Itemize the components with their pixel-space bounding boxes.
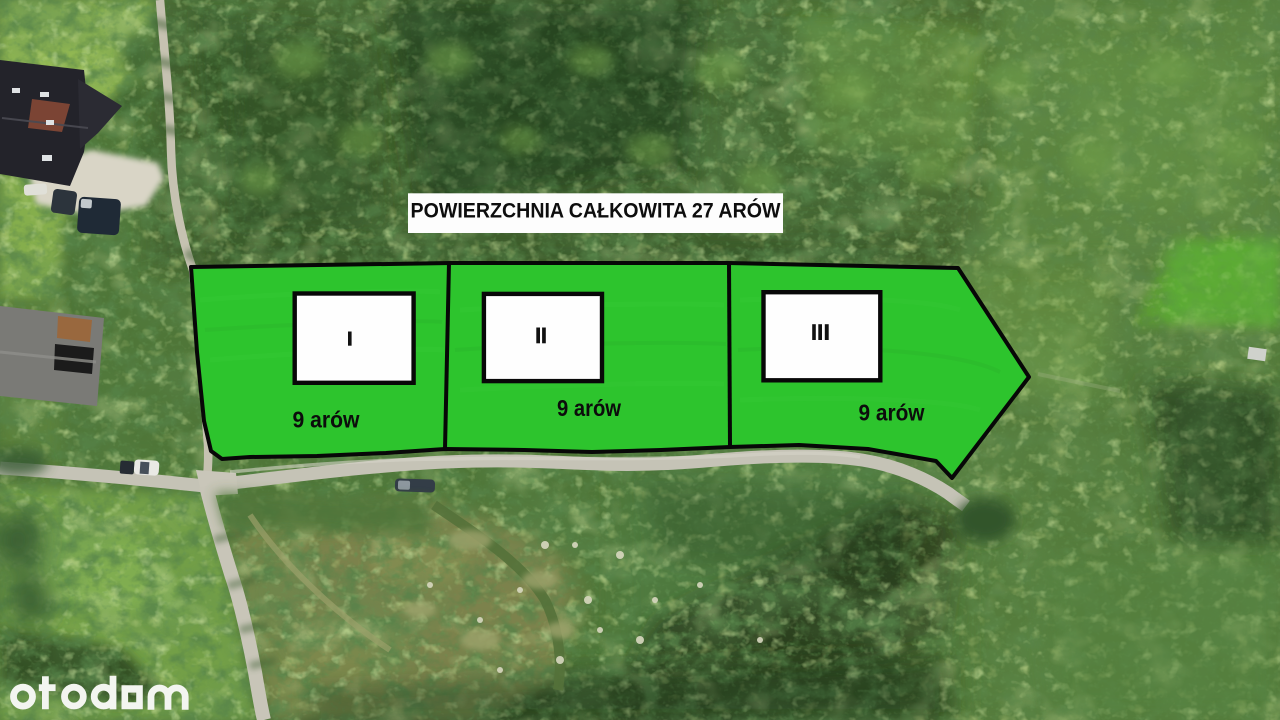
svg-text:9 arów: 9 arów <box>859 400 925 426</box>
svg-text:POWIERZCHNIA CAŁKOWITA 27 ARÓW: POWIERZCHNIA CAŁKOWITA 27 ARÓW <box>411 198 781 222</box>
svg-text:9 arów: 9 arów <box>557 395 621 421</box>
svg-text:9 arów: 9 arów <box>293 407 360 433</box>
